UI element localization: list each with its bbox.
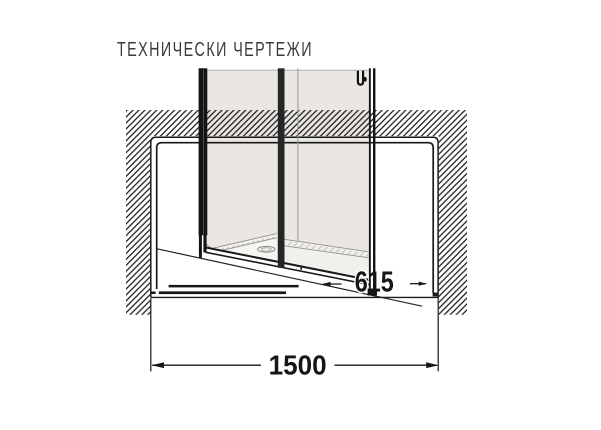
svg-text:ТЕХНИЧЕСКИ ЧЕРТЕЖИ: ТЕХНИЧЕСКИ ЧЕРТЕЖИ bbox=[117, 39, 313, 61]
svg-text:1500: 1500 bbox=[269, 349, 327, 380]
